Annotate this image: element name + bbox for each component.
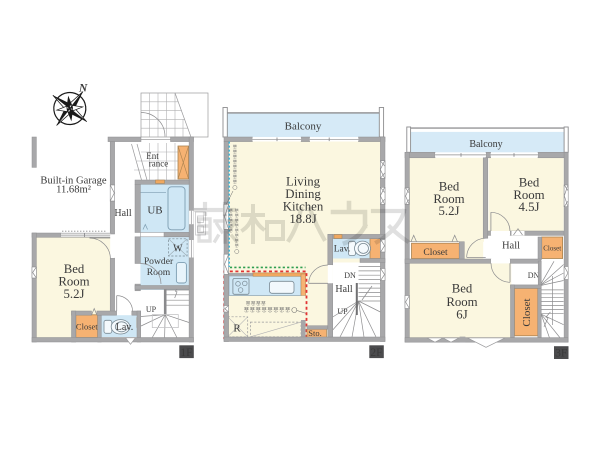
svg-text:R: R: [233, 323, 241, 335]
svg-text:Lav.: Lav.: [116, 322, 133, 333]
svg-text:Hall: Hall: [502, 241, 520, 252]
svg-text:Hall: Hall: [335, 284, 352, 295]
svg-text:N: N: [78, 83, 88, 95]
svg-text:4.5J: 4.5J: [519, 200, 540, 214]
svg-text:UP: UP: [146, 305, 157, 314]
svg-text:UB: UB: [147, 205, 162, 217]
svg-text:2F: 2F: [370, 347, 382, 359]
svg-text:rance: rance: [149, 159, 168, 169]
svg-text:Closet: Closet: [76, 322, 98, 332]
svg-text:Bed: Bed: [452, 282, 473, 296]
svg-text:DN: DN: [528, 271, 540, 280]
svg-text:6J: 6J: [456, 308, 467, 322]
svg-text:Room: Room: [147, 267, 171, 278]
svg-text:5.2J: 5.2J: [439, 204, 460, 218]
svg-text:Closet: Closet: [423, 248, 448, 258]
svg-text:Hall: Hall: [114, 208, 131, 219]
svg-text:5.2J: 5.2J: [64, 287, 85, 301]
svg-text:Closet: Closet: [521, 298, 533, 326]
svg-text:Balcony: Balcony: [469, 139, 502, 150]
svg-text:3F: 3F: [555, 348, 567, 360]
svg-text:Balcony: Balcony: [285, 121, 322, 133]
svg-text:Lav.: Lav.: [334, 245, 351, 255]
svg-text:UP: UP: [337, 307, 348, 316]
svg-text:W: W: [173, 244, 183, 255]
svg-text:11.68m²: 11.68m²: [56, 185, 91, 196]
svg-text:Closet: Closet: [543, 245, 561, 253]
svg-text:Powder: Powder: [144, 256, 174, 267]
svg-text:DN: DN: [344, 271, 356, 280]
svg-text:1F: 1F: [180, 347, 192, 359]
